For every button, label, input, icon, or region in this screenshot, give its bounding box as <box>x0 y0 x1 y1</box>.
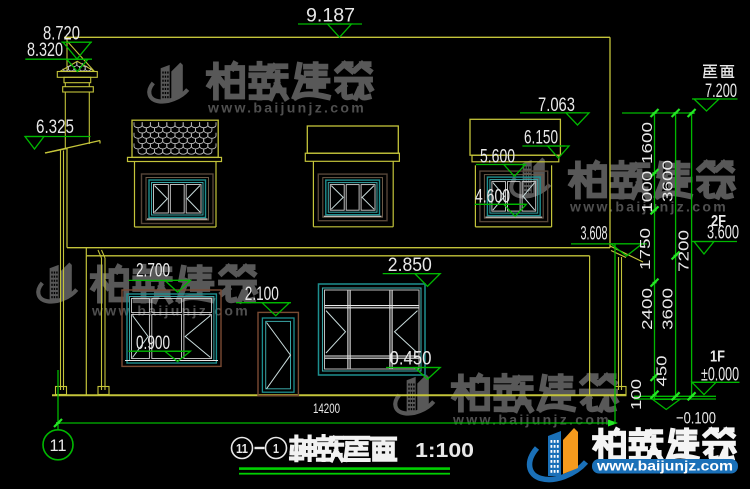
svg-text:3600: 3600 <box>660 160 677 202</box>
svg-text:www.baijunjz.com: www.baijunjz.com <box>596 459 733 474</box>
svg-text:450: 450 <box>654 356 671 387</box>
svg-text:3.600: 3.600 <box>707 223 739 244</box>
svg-text:1:100: 1:100 <box>415 440 474 462</box>
svg-text:1600: 1600 <box>639 122 656 164</box>
svg-text:1000: 1000 <box>639 171 656 213</box>
svg-text:1F: 1F <box>710 349 725 366</box>
svg-text:3.608: 3.608 <box>581 223 608 244</box>
svg-text:2.100: 2.100 <box>245 284 279 305</box>
svg-text:www.baijunjz.com: www.baijunjz.com <box>207 101 366 116</box>
svg-text:3600: 3600 <box>660 288 677 330</box>
svg-text:7200: 7200 <box>676 230 693 272</box>
svg-text:www.baijunjz.com: www.baijunjz.com <box>452 413 611 428</box>
svg-text:−0.100: −0.100 <box>676 409 716 428</box>
svg-text:14200: 14200 <box>313 401 340 416</box>
svg-text:0.450: 0.450 <box>390 348 432 369</box>
svg-text:1: 1 <box>273 441 279 456</box>
svg-text:2.850: 2.850 <box>388 255 432 276</box>
svg-text:1750: 1750 <box>637 228 654 270</box>
svg-text:8.320: 8.320 <box>27 40 63 61</box>
svg-text:11: 11 <box>236 441 248 456</box>
svg-text:2.700: 2.700 <box>136 261 170 282</box>
svg-text:11: 11 <box>50 436 67 455</box>
svg-text:6.325: 6.325 <box>36 117 74 138</box>
svg-text:www.baijunjz.com: www.baijunjz.com <box>91 304 250 319</box>
svg-text:2400: 2400 <box>639 288 656 330</box>
svg-text:100: 100 <box>628 379 645 410</box>
